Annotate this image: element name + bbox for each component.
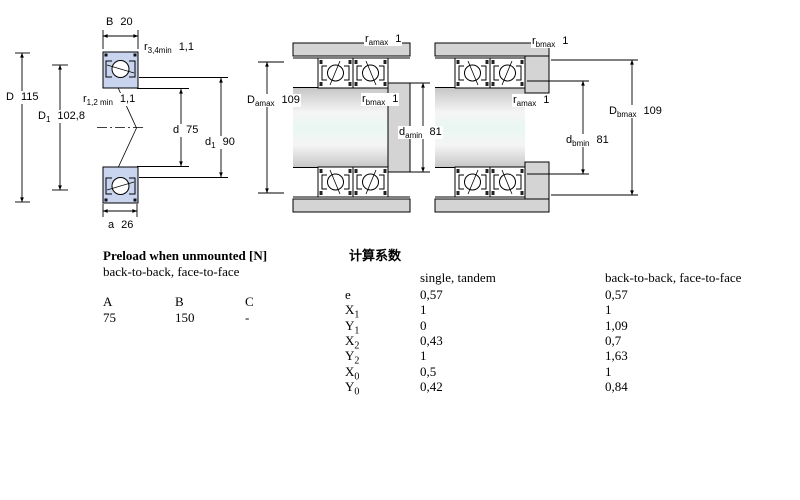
dim-base: D xyxy=(6,91,14,103)
bearing-datasheet: B20 r3,4min1,1 D115 D1102,8 r1,2 min1,1 … xyxy=(0,0,800,500)
factor-single-value: 0 xyxy=(420,318,427,333)
dim-sub: bmax xyxy=(617,110,637,119)
factor-btb-value: 1,63 xyxy=(605,348,628,363)
factor-symbol: X2 xyxy=(345,333,359,348)
dim-value: 1 xyxy=(395,33,401,45)
dim-label-dbmin: dbmin81 xyxy=(565,134,610,147)
arrangement-diagram-b xyxy=(435,43,638,212)
factors-rows: e 0,57 0,57 X1 1 1 Y1 0 1,09 X2 0,43 0,7… xyxy=(345,287,795,402)
factor-symbol: X1 xyxy=(345,302,359,317)
preload-value-c: - xyxy=(245,310,249,325)
dim-value: 1,1 xyxy=(179,41,194,53)
factor-symbol: Y2 xyxy=(345,348,359,363)
dim-base: D xyxy=(38,110,46,122)
dim-sub: 3,4min xyxy=(148,46,172,55)
dim-value: 26 xyxy=(121,219,133,231)
factors-row-x1: X1 1 1 xyxy=(345,302,795,317)
dim-value: 81 xyxy=(596,134,608,146)
dim-sub: amax xyxy=(517,99,537,108)
dim-label-B: B20 xyxy=(105,16,134,29)
factors-row-y1: Y1 0 1,09 xyxy=(345,318,795,333)
factors-row-y2: Y2 1 1,63 xyxy=(345,348,795,363)
dim-value: 1 xyxy=(543,94,549,106)
dim-label-Dbmax: Dbmax109 xyxy=(608,105,663,118)
dim-value: 109 xyxy=(282,94,300,106)
dim-base: B xyxy=(106,16,113,28)
factor-symbol: Y0 xyxy=(345,379,359,394)
dim-base: D xyxy=(247,94,255,106)
dim-sub: bmin xyxy=(572,139,589,148)
dim-base: a xyxy=(108,219,114,231)
dim-label-D: D115 xyxy=(5,91,40,104)
dim-label-rbmax-b: rbmax1 xyxy=(531,35,569,48)
factors-title: 计算系数 xyxy=(349,248,401,263)
factor-btb-value: 1 xyxy=(605,302,612,317)
factor-btb-value: 1,09 xyxy=(605,318,628,333)
dim-label-r12: r1,2 min1,1 xyxy=(82,93,136,106)
preload-col-a: A xyxy=(103,294,112,309)
dim-value: 75 xyxy=(186,124,198,136)
factors-col-btb: back-to-back, face-to-face xyxy=(605,270,741,285)
factors-row-x0: X0 0,5 1 xyxy=(345,364,795,379)
dim-value: 20 xyxy=(120,16,132,28)
dim-value: 81 xyxy=(429,126,441,138)
dim-sub: 1,2 min xyxy=(87,98,113,107)
preload-title: Preload when unmounted [N] xyxy=(103,248,267,263)
housing-section xyxy=(435,199,549,212)
preload-subtitle: back-to-back, face-to-face xyxy=(103,264,239,279)
housing-section xyxy=(293,199,410,212)
factors-row-e: e 0,57 0,57 xyxy=(345,287,795,302)
dim-label-damin: damin81 xyxy=(398,126,443,139)
dim-label-ramax-b: ramax1 xyxy=(512,94,550,107)
preload-col-b: B xyxy=(175,294,184,309)
dim-label-ramax: ramax1 xyxy=(364,33,402,46)
preload-value-a: 75 xyxy=(103,310,116,325)
dim-label-D1: D1102,8 xyxy=(37,110,86,123)
factors-row-x2: X2 0,43 0,7 xyxy=(345,333,795,348)
dim-sub: bmax xyxy=(366,98,386,107)
factor-single-value: 0,43 xyxy=(420,333,443,348)
dim-label-a: a26 xyxy=(107,219,134,232)
dim-value: 109 xyxy=(644,105,662,117)
factor-single-value: 1 xyxy=(420,302,427,317)
dim-base: D xyxy=(609,105,617,117)
dim-base: d xyxy=(173,124,179,136)
factor-single-value: 0,57 xyxy=(420,287,443,302)
dim-value: 90 xyxy=(223,136,235,148)
dim-value: 1,1 xyxy=(120,93,135,105)
factor-symbol: Y1 xyxy=(345,318,359,333)
factor-single-value: 0,42 xyxy=(420,379,443,394)
dim-label-d: d75 xyxy=(172,124,199,137)
dim-sub: bmax xyxy=(536,40,556,49)
factor-btb-value: 0,7 xyxy=(605,333,621,348)
factor-btb-value: 1 xyxy=(605,364,612,379)
preload-value-b: 150 xyxy=(175,310,195,325)
dim-sub: amax xyxy=(255,99,275,108)
preload-col-c: C xyxy=(245,294,254,309)
dim-sub: amax xyxy=(369,38,389,47)
factor-symbol: e xyxy=(345,287,351,302)
dim-value: 115 xyxy=(21,91,39,103)
dim-sub: 1 xyxy=(46,115,50,124)
dim-label-r34: r3,4min1,1 xyxy=(143,41,195,54)
factors-row-y0: Y0 0,42 0,84 xyxy=(345,379,795,394)
dim-sub: 1 xyxy=(211,141,215,150)
dim-sub: amin xyxy=(405,131,422,140)
dim-label-d1: d190 xyxy=(204,136,236,149)
factor-single-value: 1 xyxy=(420,348,427,363)
factor-single-value: 0,5 xyxy=(420,364,436,379)
dim-value: 1 xyxy=(562,35,568,47)
dim-label-rbmax: rbmax1 xyxy=(361,93,399,106)
dim-label-Damax: Damax109 xyxy=(246,94,301,107)
dim-value: 102,8 xyxy=(57,110,85,122)
dim-value: 1 xyxy=(392,93,398,105)
factor-btb-value: 0,84 xyxy=(605,379,628,394)
factors-col-single: single, tandem xyxy=(420,270,496,285)
factor-btb-value: 0,57 xyxy=(605,287,628,302)
factor-symbol: X0 xyxy=(345,364,359,379)
